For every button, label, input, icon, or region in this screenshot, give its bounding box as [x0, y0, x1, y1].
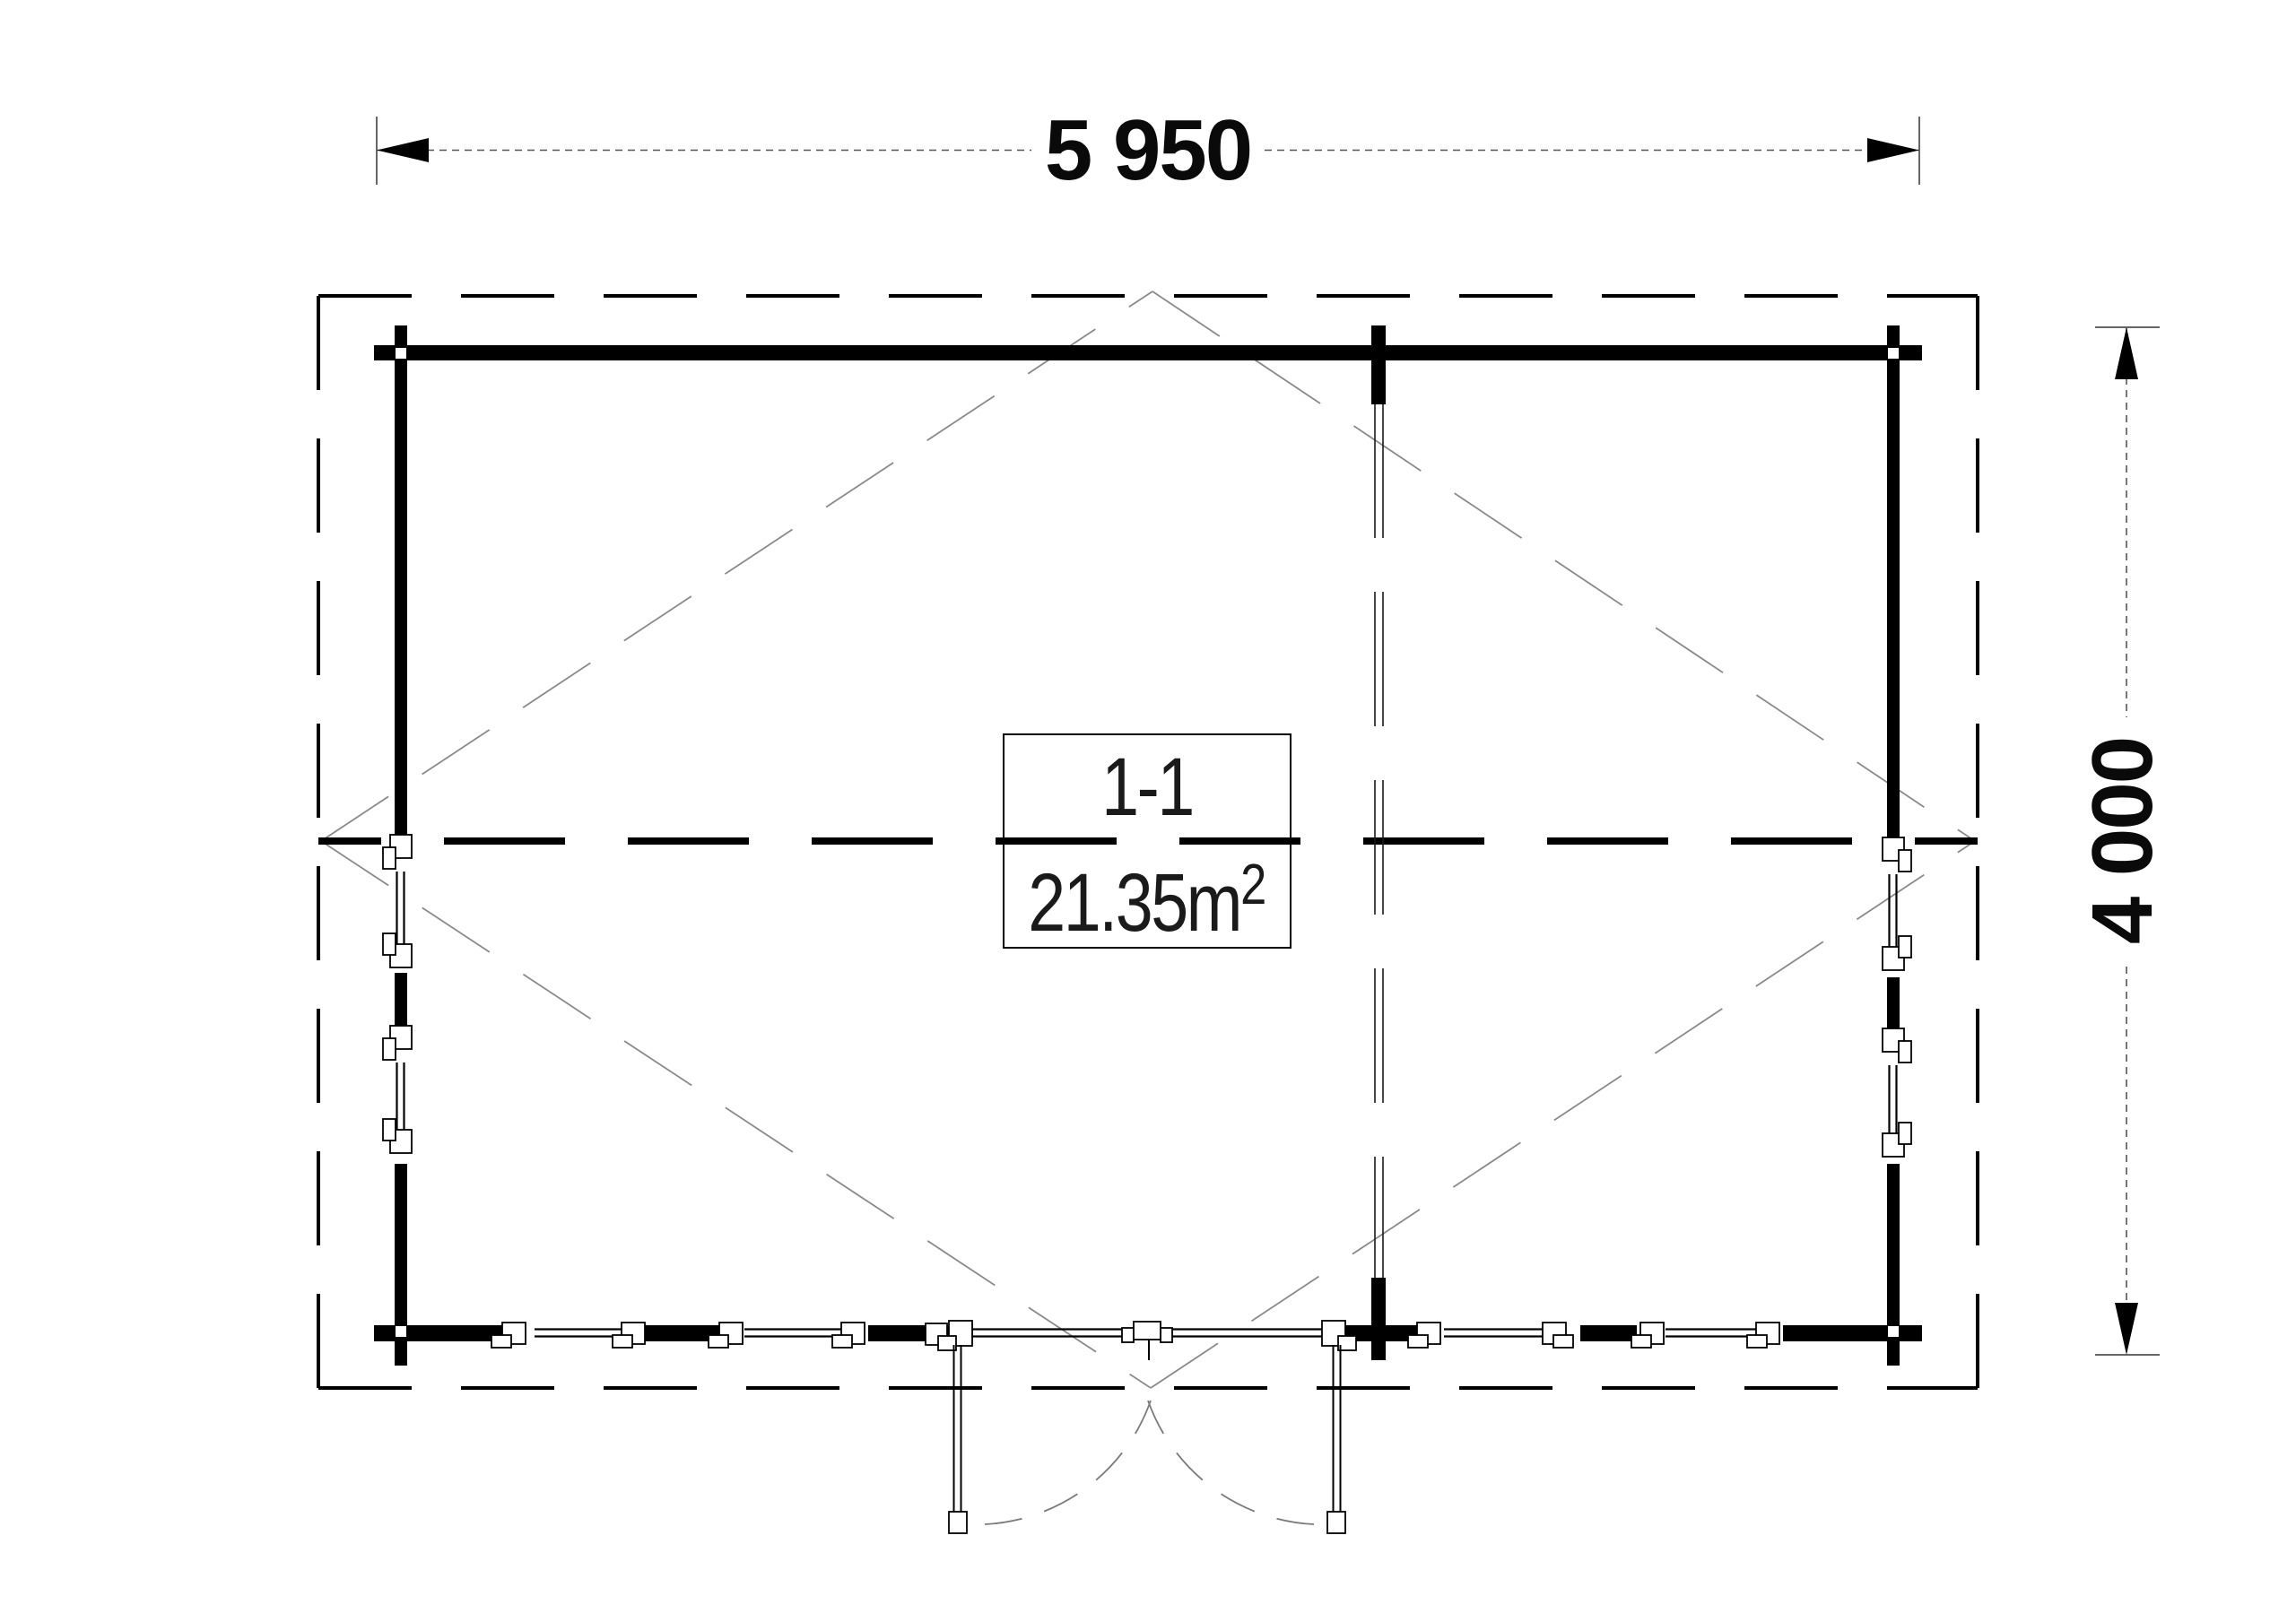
wall-right-middle — [1887, 977, 1900, 1031]
partition-bottom-stub — [1371, 1278, 1386, 1360]
wall-left-middle — [395, 973, 407, 1028]
door-leaf-left — [954, 1345, 961, 1512]
dimension-arrow-right — [1867, 138, 1919, 162]
dimension-width-label: 5 950 — [969, 104, 1327, 197]
door-swing-arcs — [985, 1401, 1314, 1524]
dimension-height-label: 4 000 — [2076, 702, 2170, 980]
window-right-2 — [1890, 1065, 1897, 1135]
dimension-arrow-down — [2115, 1303, 2138, 1355]
room-name: 1-1 — [1003, 739, 1291, 836]
door-leaves — [954, 1345, 1341, 1512]
window-bottom-1 — [535, 1330, 623, 1337]
partition-top-stub — [1371, 325, 1386, 404]
dimension-arrow-left — [377, 138, 429, 162]
window-bottom-4 — [1665, 1330, 1758, 1337]
window-bottom-2 — [744, 1330, 843, 1337]
door-leaf-feet — [949, 1512, 1345, 1533]
door-swing-arc-left — [985, 1401, 1151, 1524]
wall-left-upper — [395, 325, 407, 837]
wall-right-upper — [1887, 325, 1900, 843]
room-area-exponent: 2 — [1240, 852, 1266, 916]
door-leaf-right — [1334, 1345, 1341, 1512]
door-astragal — [1122, 1322, 1172, 1342]
room-name-text: 1-1 — [1101, 741, 1193, 835]
room-area-text: 21.35m2 — [1028, 851, 1266, 950]
wall-bottom-1 — [374, 1325, 508, 1341]
dimension-arrow-up — [2115, 327, 2138, 379]
floor-plan-page: 1-1 21.35m2 5 950 4 000 — [0, 0, 2296, 1622]
window-bottom-3 — [1444, 1330, 1543, 1337]
room-area: 21.35m2 — [1003, 850, 1291, 950]
wall-top — [374, 345, 1922, 360]
window-right-1 — [1890, 874, 1897, 949]
window-left-1 — [397, 872, 404, 946]
wall-bottom-5 — [1580, 1325, 1637, 1341]
window-left-2 — [397, 1063, 404, 1132]
door-swing-arc-right — [1148, 1401, 1314, 1524]
wall-bottom-6 — [1783, 1325, 1922, 1341]
double-door — [938, 1321, 1356, 1533]
